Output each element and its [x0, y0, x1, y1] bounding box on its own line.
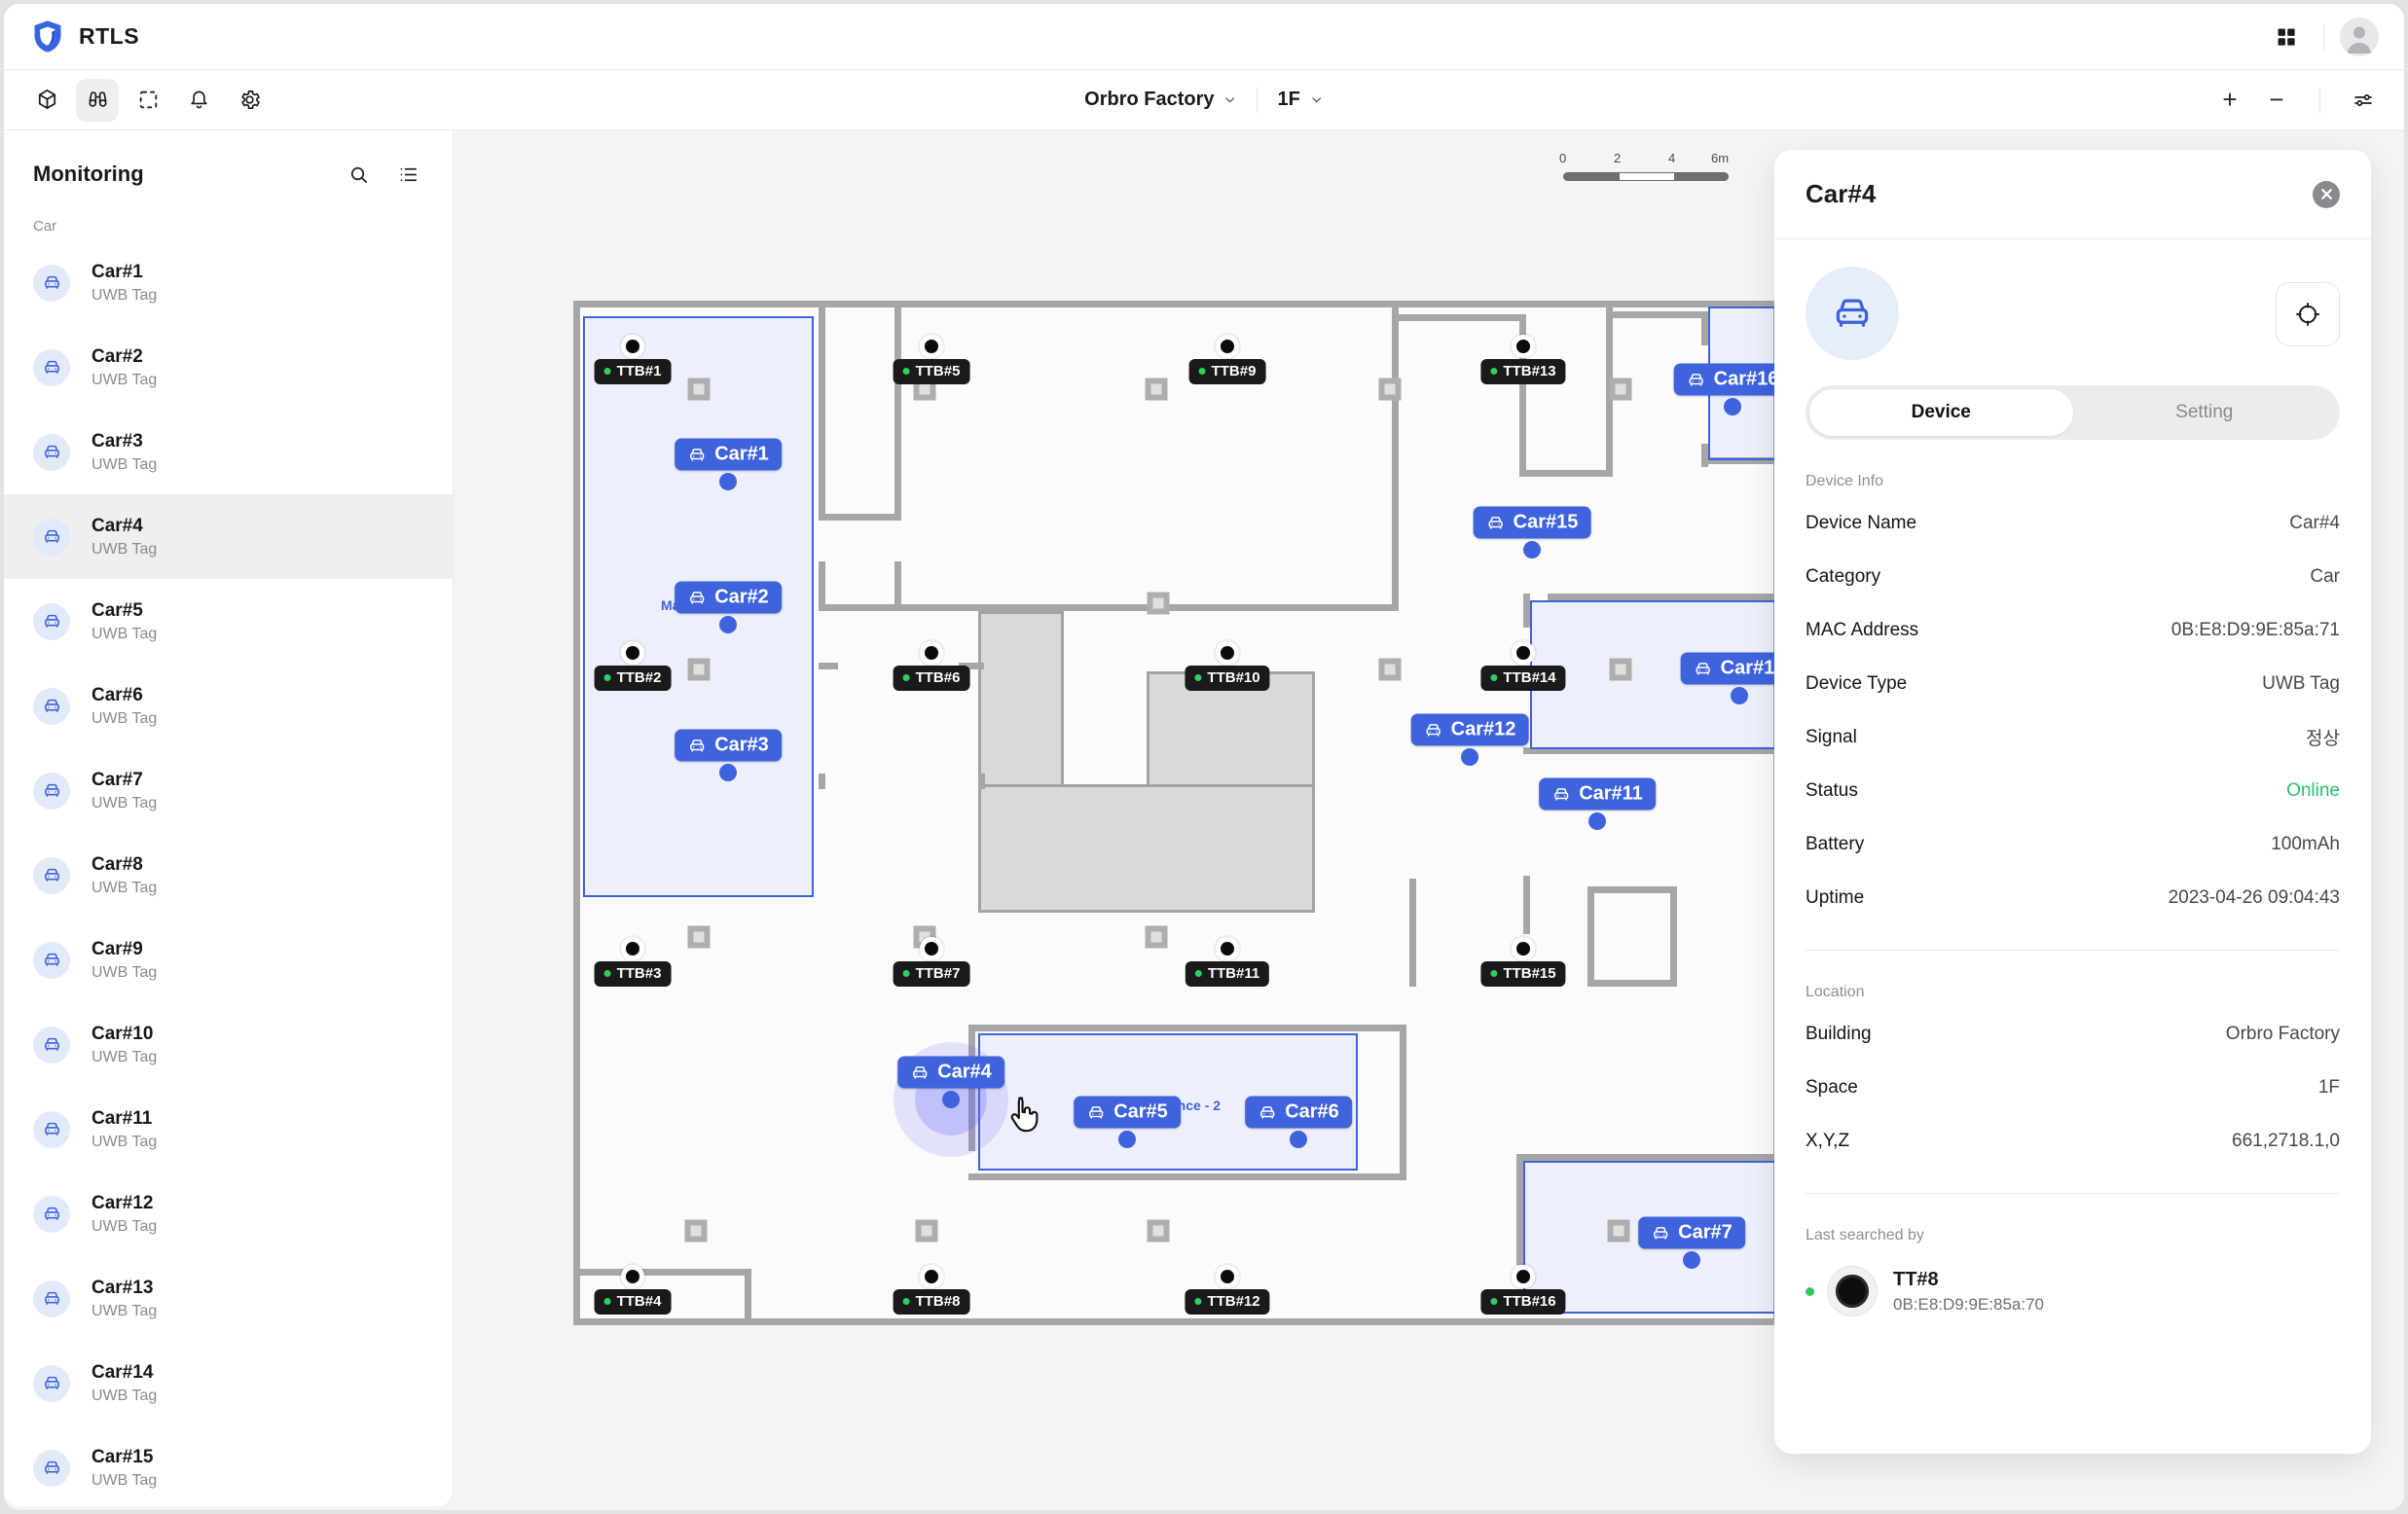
- selector-divider: [1258, 88, 1259, 113]
- car-label-pill[interactable]: Car#3: [675, 730, 782, 762]
- anchor-id: TTB#15: [1503, 965, 1555, 982]
- wall: [1519, 470, 1613, 477]
- car-id: Car#15: [1514, 512, 1579, 534]
- online-status-dot: [1195, 970, 1202, 977]
- wall: [1399, 314, 1526, 321]
- sidebar-device-item[interactable]: Car#1 UWB Tag: [4, 240, 453, 325]
- car-id: Car#7: [1678, 1222, 1733, 1244]
- device-type: UWB Tag: [91, 964, 157, 982]
- notifications-bell-icon[interactable]: [177, 79, 220, 122]
- car-position-dot: [942, 1091, 960, 1108]
- car-avatar: [33, 1027, 70, 1063]
- car-position-dot: [719, 616, 737, 633]
- anchor-id: TTB#11: [1208, 965, 1259, 982]
- car-id: Car#12: [1451, 719, 1516, 741]
- sidebar-title: Monitoring: [33, 162, 347, 187]
- wall: [819, 561, 825, 610]
- device-detail-panel: Car#4 Device Settin: [1774, 150, 2371, 1454]
- sidebar-device-item[interactable]: Car#6 UWB Tag: [4, 664, 453, 748]
- sensor-square-icon: [1610, 659, 1632, 681]
- anchor-id: TTB#2: [617, 669, 662, 686]
- monitoring-sidebar: Monitoring Car: [4, 130, 454, 1506]
- info-label: MAC Address: [1806, 620, 1918, 641]
- info-value: 1F: [2318, 1077, 2340, 1099]
- anchor-label: TTB#11: [1186, 961, 1269, 987]
- wall: [1523, 876, 1530, 934]
- wall: [1701, 311, 1708, 345]
- anchor-label: TTB#2: [595, 666, 672, 691]
- panel-divider: [1806, 1193, 2340, 1194]
- sensor-square-icon: [685, 1220, 708, 1243]
- info-row: Battery 100mAh: [1806, 817, 2340, 871]
- device-info-rows: Device Name Car#4 Category Car MAC Addre…: [1806, 496, 2340, 924]
- info-row: Device Type UWB Tag: [1806, 657, 2340, 710]
- scale-tick-label: 4: [1668, 151, 1675, 165]
- wall: [894, 561, 901, 610]
- info-label: Category: [1806, 566, 1880, 588]
- device-name: Car#14: [91, 1362, 157, 1384]
- user-avatar[interactable]: [2340, 18, 2379, 56]
- info-row: Status Online: [1806, 764, 2340, 817]
- car-icon: [42, 1119, 62, 1139]
- anchor-label: TTB#14: [1480, 666, 1565, 691]
- sidebar-device-item[interactable]: Car#15 UWB Tag: [4, 1425, 453, 1506]
- info-value: 661,2718.1,0: [2232, 1131, 2340, 1152]
- wall: [1606, 311, 1708, 318]
- online-status-dot: [1490, 1298, 1497, 1305]
- car-icon: [1651, 1223, 1670, 1243]
- anchor-id: TTB#13: [1503, 363, 1555, 379]
- anchor-dot-icon: [1216, 641, 1239, 665]
- car-icon: [42, 1373, 62, 1393]
- car-avatar: [33, 773, 70, 810]
- device-type: UWB Tag: [91, 1388, 157, 1405]
- info-value: 100mAh: [2271, 834, 2340, 855]
- anchor-label: TTB#5: [894, 359, 970, 384]
- device-name: Car#5: [91, 600, 157, 622]
- device-list: Car#1 UWB Tag Car#2 UWB Tag: [4, 240, 453, 1506]
- searched-device-mac: 0B:E8:D9:9E:85a:70: [1893, 1295, 2044, 1315]
- info-label: Signal: [1806, 727, 1857, 748]
- car-icon: [1694, 659, 1713, 678]
- tab-device[interactable]: Device: [1809, 389, 2073, 436]
- anchor-dot-icon: [621, 937, 644, 960]
- car-position-dot: [1731, 687, 1748, 704]
- anchor-label: TTB#9: [1189, 359, 1266, 384]
- car-icon: [42, 780, 62, 801]
- anchor-id: TTB#7: [916, 965, 961, 982]
- car-id: Car#16: [1714, 369, 1779, 391]
- search-icon[interactable]: [347, 163, 370, 186]
- location-rows: Building Orbro Factory Space 1F X,Y,Z 66…: [1806, 1007, 2340, 1168]
- device-name: Car#8: [91, 854, 157, 876]
- anchor-id: TTB#10: [1207, 669, 1259, 686]
- wall: [1392, 301, 1399, 611]
- wall: [1409, 879, 1416, 987]
- car-icon: [1486, 513, 1506, 532]
- anchor-label: TTB#13: [1480, 359, 1565, 384]
- sidebar-section-label: Car: [4, 197, 453, 240]
- device-type: UWB Tag: [91, 880, 157, 897]
- car-id: Car#3: [714, 735, 769, 757]
- online-status-dot: [1806, 1287, 1814, 1296]
- car-id: Car#5: [1113, 1101, 1168, 1124]
- brand-name: RTLS: [79, 23, 139, 50]
- tab-setting[interactable]: Setting: [2073, 389, 2337, 436]
- anchor-id: TTB#16: [1503, 1293, 1555, 1310]
- anchor-id: TTB#6: [916, 669, 961, 686]
- anchor-id: TTB#5: [916, 363, 961, 379]
- car-icon: [42, 357, 62, 378]
- chevron-down-icon: [1223, 92, 1238, 107]
- device-avatar: [1806, 267, 1899, 360]
- online-status-dot: [604, 368, 611, 375]
- anchor-label: TTB#12: [1185, 1289, 1269, 1315]
- car-id: Car#1: [714, 444, 769, 466]
- header-divider: [2323, 24, 2324, 50]
- device-type: UWB Tag: [91, 1218, 157, 1236]
- info-row: Signal 정상: [1806, 710, 2340, 764]
- toolbar-right-divider: [2319, 88, 2320, 113]
- info-value: Online: [2286, 780, 2340, 802]
- sidebar-device-item[interactable]: Car#13 UWB Tag: [4, 1256, 453, 1341]
- anchor-id: TTB#14: [1503, 669, 1555, 686]
- car-icon: [687, 588, 707, 607]
- sensor-square-icon: [1148, 1220, 1170, 1243]
- device-name: Car#2: [91, 346, 157, 368]
- wall: [1523, 594, 1530, 628]
- zoom-out-button[interactable]: −: [2257, 81, 2296, 120]
- locate-crosshair-icon[interactable]: [2276, 282, 2340, 346]
- device-name: Car#15: [91, 1447, 157, 1468]
- settings-gear-icon[interactable]: [228, 79, 271, 122]
- wall: [819, 774, 825, 789]
- building-selector-value: Orbro Factory: [1084, 89, 1214, 111]
- car-avatar: [33, 857, 70, 894]
- car-icon: [1830, 291, 1875, 336]
- info-row: Space 1F: [1806, 1061, 2340, 1114]
- sensor-square-icon: [1379, 378, 1402, 401]
- device-type: UWB Tag: [91, 710, 157, 728]
- anchor-dot-icon: [1512, 335, 1535, 358]
- anchor-dot-icon: [1512, 641, 1535, 665]
- wall: [1516, 1154, 1523, 1265]
- wall: [819, 604, 1399, 611]
- cube-3d-icon[interactable]: [25, 79, 68, 122]
- building-selector[interactable]: Orbro Factory: [1084, 89, 1237, 111]
- sensor-square-icon: [1610, 378, 1632, 401]
- sidebar-device-item[interactable]: Car#8 UWB Tag: [4, 833, 453, 918]
- map-toolbar: Orbro Factory 1F + −: [4, 70, 2404, 130]
- last-searched-device[interactable]: TT#8 0B:E8:D9:9E:85a:70: [1806, 1266, 2340, 1316]
- info-value: 0B:E8:D9:9E:85a:71: [2171, 620, 2340, 641]
- info-value: UWB Tag: [2262, 673, 2340, 695]
- info-value: Orbro Factory: [2226, 1024, 2340, 1045]
- car-icon: [42, 611, 62, 631]
- car-icon: [1687, 370, 1706, 389]
- device-name: Car#6: [91, 685, 157, 706]
- sidebar-device-item[interactable]: Car#3 UWB Tag: [4, 410, 453, 494]
- wall: [894, 301, 901, 519]
- info-row: MAC Address 0B:E8:D9:9E:85a:71: [1806, 603, 2340, 657]
- car-icon: [42, 442, 62, 462]
- car-label-pill[interactable]: Car#11: [1539, 778, 1656, 811]
- anchor-dot-icon: [621, 1265, 644, 1288]
- panel-divider: [1806, 950, 2340, 951]
- anchor-device-photo: [1827, 1266, 1878, 1316]
- sensor-square-icon: [688, 659, 711, 681]
- device-type: UWB Tag: [91, 287, 157, 305]
- wall: [968, 1025, 1406, 1031]
- info-value: 정상: [2306, 724, 2340, 750]
- car-position-dot: [1118, 1131, 1136, 1148]
- online-status-dot: [1194, 674, 1201, 681]
- sidebar-device-item[interactable]: Car#14 UWB Tag: [4, 1341, 453, 1425]
- top-header: RTLS: [4, 4, 2404, 70]
- car-id: Car#11: [1579, 783, 1643, 806]
- device-type: UWB Tag: [91, 541, 157, 559]
- sidebar-device-item[interactable]: Car#10 UWB Tag: [4, 1002, 453, 1087]
- sensor-square-icon: [1146, 926, 1168, 949]
- sensor-square-icon: [1146, 378, 1168, 401]
- hand-cursor: [1003, 1094, 1047, 1138]
- wall: [819, 301, 825, 519]
- info-row: Category Car: [1806, 550, 2340, 603]
- anchor-label: TTB#16: [1480, 1289, 1565, 1315]
- device-name: Car#1: [91, 262, 157, 283]
- wall: [573, 1269, 751, 1276]
- car-icon: [1551, 784, 1571, 804]
- sidebar-device-item[interactable]: Car#5 UWB Tag: [4, 579, 453, 664]
- anchor-id: TTB#3: [617, 965, 662, 982]
- online-status-dot: [1199, 368, 1206, 375]
- device-type: UWB Tag: [91, 1303, 157, 1320]
- info-label: X,Y,Z: [1806, 1131, 1849, 1152]
- info-label: Device Name: [1806, 513, 1916, 534]
- info-value: Car: [2310, 566, 2340, 588]
- device-name: Car#12: [91, 1193, 157, 1214]
- car-label-pill[interactable]: Car#7: [1638, 1217, 1745, 1249]
- scale-tick-label: 0: [1559, 151, 1566, 165]
- anchor-label: TTB#10: [1185, 666, 1269, 691]
- sidebar-device-item[interactable]: Car#2 UWB Tag: [4, 325, 453, 410]
- anchor-dot-icon: [920, 641, 943, 665]
- car-label-pill[interactable]: Car#2: [675, 582, 782, 614]
- wall: [978, 774, 985, 789]
- device-name: Car#4: [91, 516, 157, 537]
- info-row: Device Name Car#4: [1806, 496, 2340, 550]
- info-label: Battery: [1806, 834, 1864, 855]
- device-type: UWB Tag: [91, 1049, 157, 1066]
- car-avatar: [33, 1111, 70, 1148]
- car-position-dot: [1290, 1131, 1307, 1148]
- filter-sliders-icon[interactable]: [2344, 81, 2383, 120]
- wall: [745, 1269, 751, 1325]
- car-icon: [42, 1288, 62, 1309]
- online-status-dot: [604, 1298, 611, 1305]
- sidebar-device-item[interactable]: Car#7 UWB Tag: [4, 748, 453, 833]
- car-label-pill[interactable]: Car#15: [1474, 507, 1591, 539]
- car-avatar: [33, 1196, 70, 1233]
- car-avatar: [33, 1280, 70, 1317]
- car-icon: [910, 1063, 930, 1082]
- car-label-pill[interactable]: Car#5: [1074, 1097, 1181, 1129]
- info-label: Space: [1806, 1077, 1858, 1099]
- anchor-label: TTB#15: [1480, 961, 1565, 987]
- device-type: UWB Tag: [91, 1472, 157, 1490]
- sensor-square-icon: [1148, 593, 1170, 615]
- anchor-dot-icon: [1512, 937, 1535, 960]
- sensor-square-icon: [1379, 659, 1402, 681]
- anchor-label: TTB#1: [595, 359, 672, 384]
- info-row: Building Orbro Factory: [1806, 1007, 2340, 1061]
- online-status-dot: [903, 970, 910, 977]
- online-status-dot: [903, 1298, 910, 1305]
- anchor-dot-icon: [920, 1265, 943, 1288]
- online-status-dot: [1194, 1298, 1201, 1305]
- scale-tick-label: 6m: [1711, 151, 1729, 165]
- anchor-label: TTB#3: [595, 961, 672, 987]
- anchor-dot-icon: [621, 641, 644, 665]
- info-label: Status: [1806, 780, 1858, 802]
- wall: [819, 663, 838, 669]
- wall: [968, 1173, 1406, 1180]
- info-value: Car#4: [2289, 513, 2340, 534]
- floor-selector-value: 1F: [1278, 89, 1300, 111]
- anchor-label: TTB#6: [894, 666, 970, 691]
- sensor-square-icon: [916, 1220, 938, 1243]
- device-name: Car#7: [91, 770, 157, 791]
- sidebar-device-item[interactable]: Car#11 UWB Tag: [4, 1087, 453, 1172]
- online-status-dot: [1490, 674, 1497, 681]
- car-icon: [42, 696, 62, 716]
- monitoring-binoculars-icon[interactable]: [76, 79, 119, 122]
- device-type: UWB Tag: [91, 1134, 157, 1151]
- device-name: Car#3: [91, 431, 157, 452]
- car-id: Car#6: [1285, 1101, 1339, 1124]
- car-avatar: [33, 603, 70, 640]
- anchor-id: TTB#1: [617, 363, 662, 379]
- chevron-down-icon: [1309, 92, 1324, 107]
- sidebar-device-item[interactable]: Car#12 UWB Tag: [4, 1172, 453, 1256]
- list-view-icon[interactable]: [397, 163, 420, 186]
- sidebar-device-item[interactable]: Car#4 UWB Tag: [4, 494, 453, 579]
- car-position-dot: [1523, 541, 1541, 559]
- close-icon[interactable]: [2313, 181, 2340, 208]
- zoom-in-button[interactable]: +: [2210, 81, 2249, 120]
- scale-tick-label: 2: [1614, 151, 1621, 165]
- car-avatar: [33, 265, 70, 302]
- searched-device-name: TT#8: [1893, 1269, 2044, 1291]
- section-heading-location: Location: [1806, 984, 2340, 1001]
- online-status-dot: [604, 970, 611, 977]
- online-status-dot: [1490, 368, 1497, 375]
- device-type: UWB Tag: [91, 795, 157, 812]
- car-avatar: [33, 349, 70, 386]
- car-position-dot: [1724, 398, 1741, 415]
- wall: [1400, 1025, 1406, 1180]
- car-avatar: [33, 942, 70, 979]
- info-row: Uptime 2023-04-26 09:04:43: [1806, 871, 2340, 924]
- car-label-pill[interactable]: Car#1: [675, 439, 782, 471]
- section-heading-device-info: Device Info: [1806, 473, 2340, 490]
- car-label-pill[interactable]: Car#6: [1245, 1097, 1352, 1129]
- car-id: Car#4: [937, 1062, 992, 1084]
- anchor-dot-icon: [1216, 335, 1239, 358]
- floorplan-room: [978, 784, 1315, 913]
- anchor-label: TTB#4: [595, 1289, 672, 1315]
- anchor-dot-icon: [1216, 937, 1239, 960]
- anchor-label: TTB#8: [894, 1289, 970, 1315]
- car-position-dot: [719, 473, 737, 490]
- map-scale-bar: [1563, 172, 1729, 181]
- wall: [819, 514, 901, 521]
- car-label-pill[interactable]: Car#12: [1411, 714, 1529, 746]
- car-icon: [1086, 1102, 1106, 1122]
- device-name: Car#11: [91, 1108, 157, 1130]
- info-label: Building: [1806, 1024, 1872, 1045]
- car-icon: [42, 1458, 62, 1478]
- car-icon: [42, 1034, 62, 1055]
- car-avatar: [33, 1450, 70, 1487]
- car-icon: [42, 865, 62, 885]
- anchor-id: TTB#9: [1212, 363, 1257, 379]
- car-icon: [1258, 1102, 1277, 1122]
- anchor-id: TTB#12: [1207, 1293, 1259, 1310]
- sidebar-device-item[interactable]: Car#9 UWB Tag: [4, 918, 453, 1002]
- car-id: Car#2: [714, 587, 769, 609]
- panel-title: Car#4: [1806, 179, 1876, 209]
- rtls-shield-logo-icon: [29, 18, 66, 55]
- device-type: UWB Tag: [91, 372, 157, 389]
- sensor-square-icon: [1608, 1220, 1630, 1243]
- car-label-pill[interactable]: Car#4: [897, 1057, 1004, 1089]
- anchor-id: TTB#8: [916, 1293, 961, 1310]
- anchor-dot-icon: [1512, 1265, 1535, 1288]
- online-status-dot: [1490, 970, 1497, 977]
- car-position-dot: [1588, 812, 1606, 830]
- anchor-id: TTB#4: [617, 1293, 662, 1310]
- anchor-dot-icon: [1216, 1265, 1239, 1288]
- device-name: Car#10: [91, 1024, 157, 1045]
- select-area-icon[interactable]: [127, 79, 169, 122]
- car-avatar: [33, 688, 70, 725]
- car-icon: [42, 272, 62, 293]
- floor-selector[interactable]: 1F: [1278, 89, 1324, 111]
- device-name: Car#13: [91, 1278, 157, 1299]
- car-avatar: [33, 519, 70, 556]
- wall: [1587, 886, 1677, 987]
- online-status-dot: [903, 368, 910, 375]
- car-position-dot: [1683, 1251, 1700, 1269]
- car-icon: [687, 445, 707, 464]
- car-icon: [687, 736, 707, 755]
- wall: [1516, 1154, 1791, 1161]
- sensor-square-icon: [688, 926, 711, 949]
- apps-grid-icon[interactable]: [2265, 16, 2308, 58]
- wall: [1548, 594, 1791, 600]
- info-value: 2023-04-26 09:04:43: [2169, 887, 2340, 909]
- brand: RTLS: [29, 18, 139, 55]
- sensor-square-icon: [688, 378, 711, 401]
- car-avatar: [33, 1365, 70, 1402]
- device-type: UWB Tag: [91, 456, 157, 474]
- car-icon: [42, 950, 62, 970]
- car-position-dot: [719, 764, 737, 781]
- info-row: X,Y,Z 661,2718.1,0: [1806, 1114, 2340, 1168]
- car-position-dot: [1461, 748, 1478, 766]
- car-icon: [42, 1204, 62, 1224]
